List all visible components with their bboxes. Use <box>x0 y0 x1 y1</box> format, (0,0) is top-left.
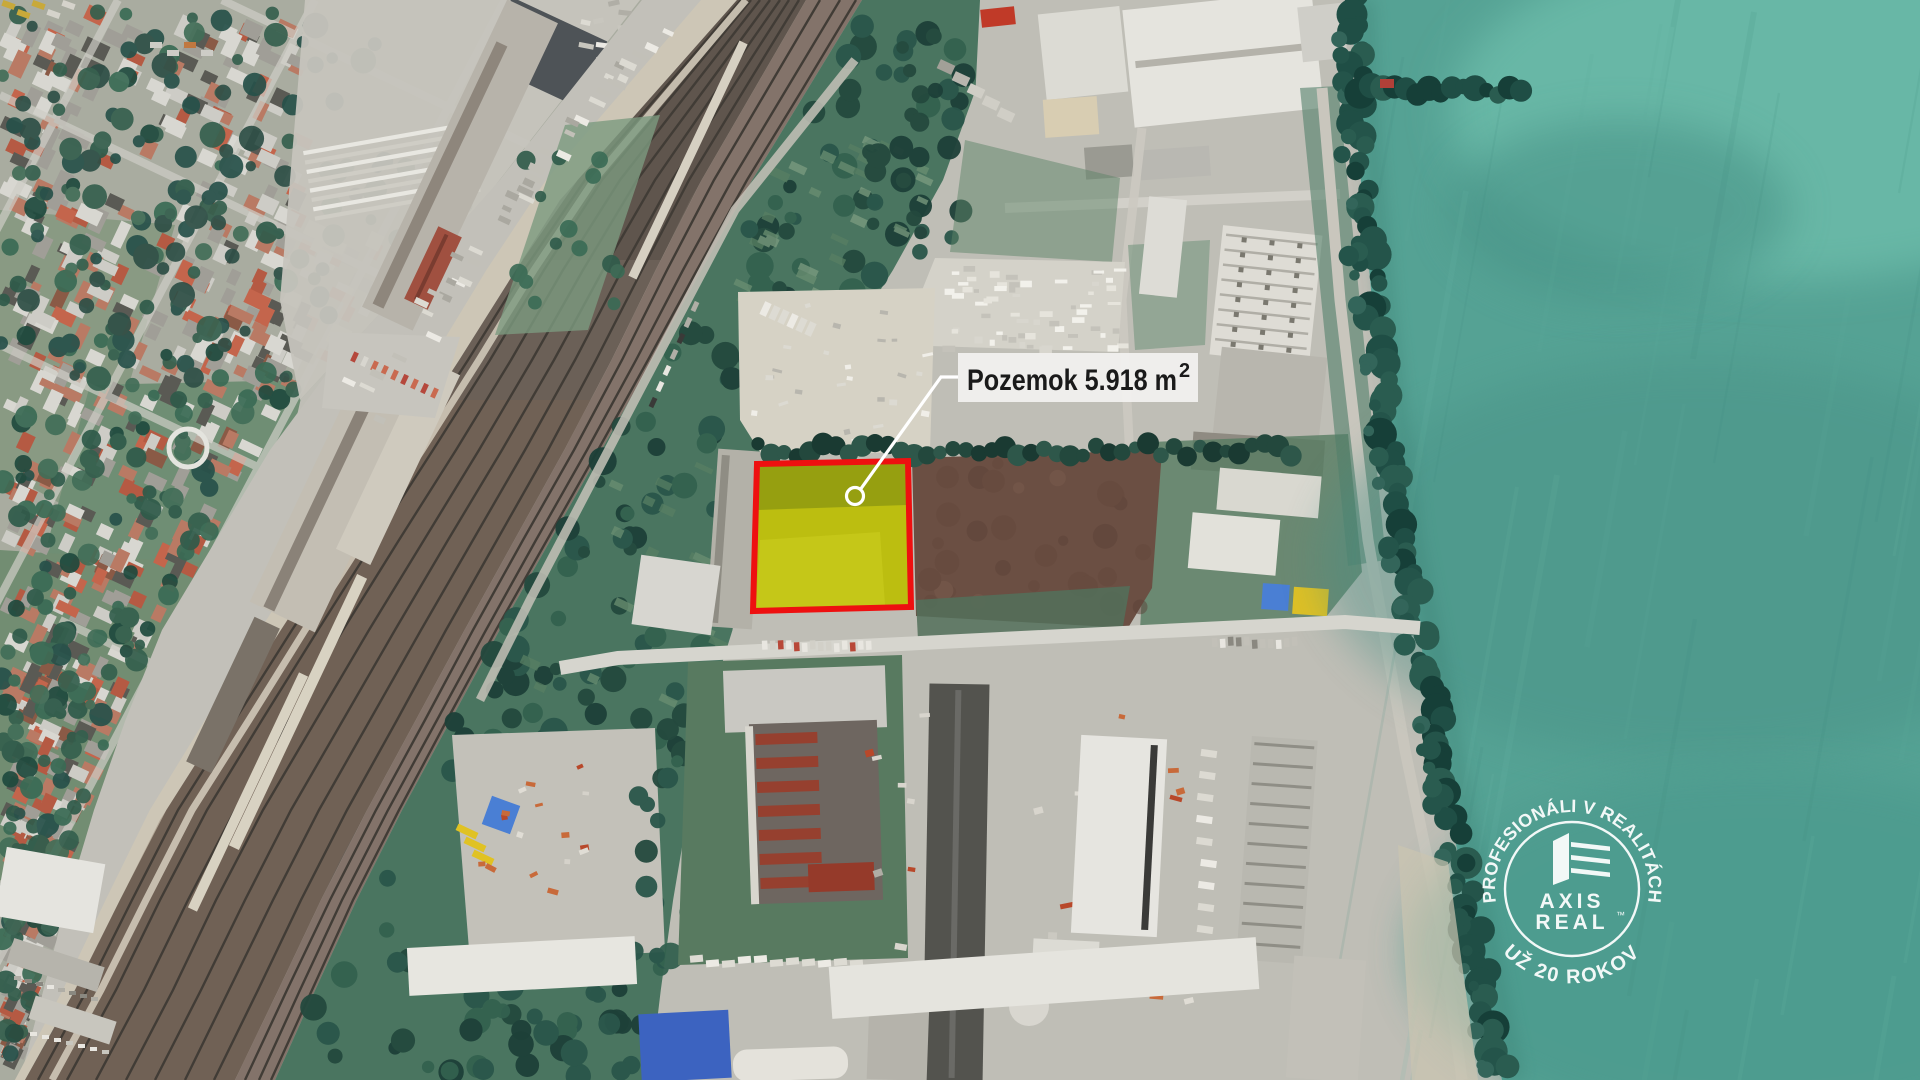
svg-text:REAL: REAL <box>1535 911 1608 934</box>
svg-text:AXIS: AXIS <box>1539 890 1604 913</box>
svg-text:™: ™ <box>1616 910 1625 920</box>
svg-text:Pozemok 5.918 m: Pozemok 5.918 m <box>967 364 1177 397</box>
svg-text:2: 2 <box>1179 360 1190 382</box>
